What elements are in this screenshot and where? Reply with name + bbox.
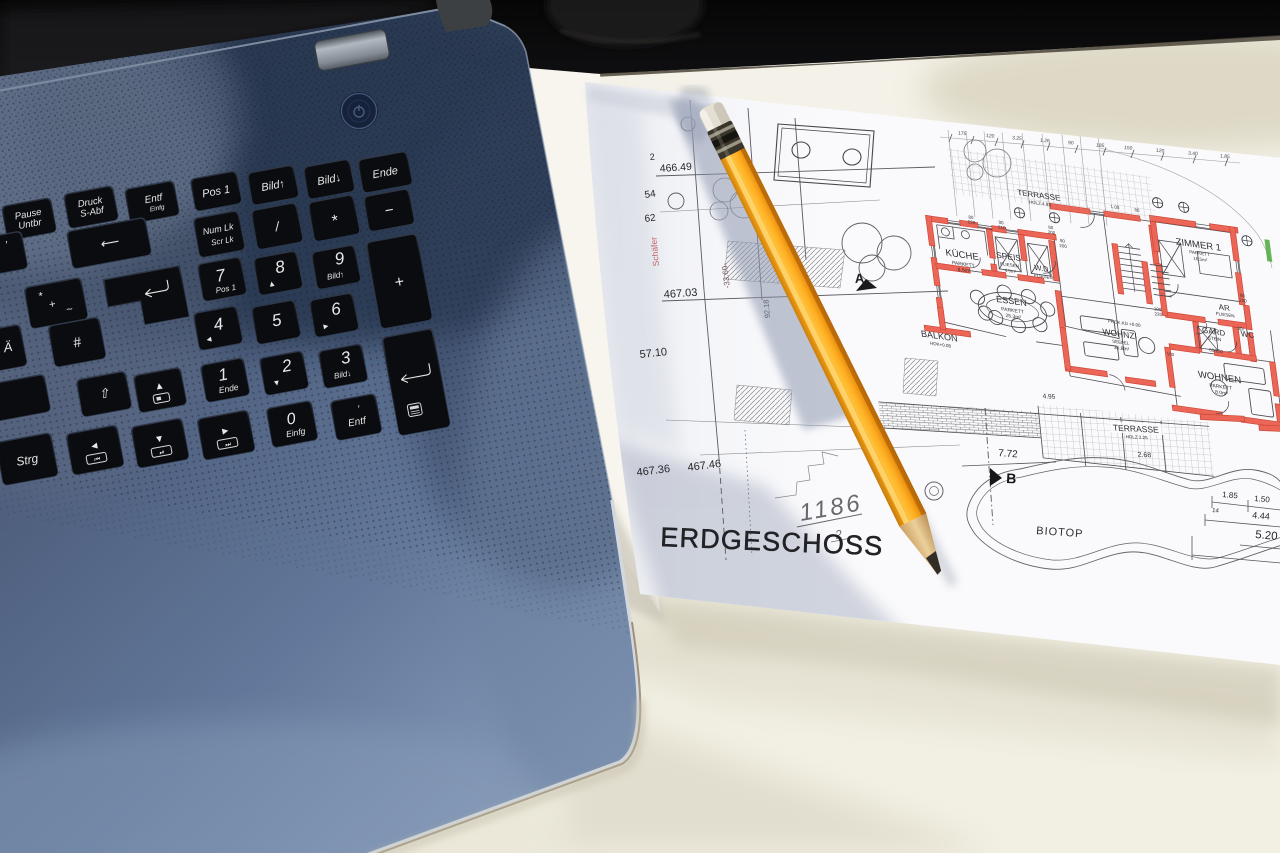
svg-text:1.85: 1.85 xyxy=(1220,153,1230,160)
svg-text:▼: ▼ xyxy=(272,378,281,388)
svg-text:▲: ▲ xyxy=(153,380,165,393)
svg-text:185: 185 xyxy=(1096,143,1105,150)
svg-text:467.03: 467.03 xyxy=(663,287,697,301)
svg-text:14: 14 xyxy=(1212,508,1220,515)
svg-text:3.25: 3.25 xyxy=(1012,135,1022,142)
svg-text:1.85: 1.85 xyxy=(1222,490,1239,500)
svg-text:120: 120 xyxy=(1156,148,1165,155)
svg-text:175: 175 xyxy=(958,131,967,138)
svg-text:62: 62 xyxy=(644,212,657,225)
svg-text:150: 150 xyxy=(1124,145,1133,152)
svg-text:▲: ▲ xyxy=(267,279,276,289)
svg-text:2: 2 xyxy=(649,152,655,162)
svg-text:3.40: 3.40 xyxy=(1188,151,1198,158)
svg-text:466.49: 466.49 xyxy=(659,161,692,175)
svg-text:B: B xyxy=(1006,470,1017,487)
svg-text:►: ► xyxy=(219,425,231,438)
svg-text:4.44: 4.44 xyxy=(1252,510,1270,521)
svg-text:◄: ◄ xyxy=(88,440,100,453)
svg-text:90: 90 xyxy=(1068,140,1074,146)
svg-text:▼: ▼ xyxy=(153,433,165,446)
svg-text:120: 120 xyxy=(986,133,995,140)
svg-text:◄: ◄ xyxy=(204,334,213,344)
svg-text:5.20: 5.20 xyxy=(1255,529,1278,543)
svg-text:4.95: 4.95 xyxy=(1042,393,1056,401)
svg-text:2.68: 2.68 xyxy=(1137,452,1151,460)
svg-text:1.26: 1.26 xyxy=(1040,138,1050,145)
svg-text:►: ► xyxy=(321,321,330,331)
svg-text:1.50: 1.50 xyxy=(1254,494,1271,504)
svg-text:54: 54 xyxy=(644,188,657,201)
svg-text:7.72: 7.72 xyxy=(998,448,1019,460)
